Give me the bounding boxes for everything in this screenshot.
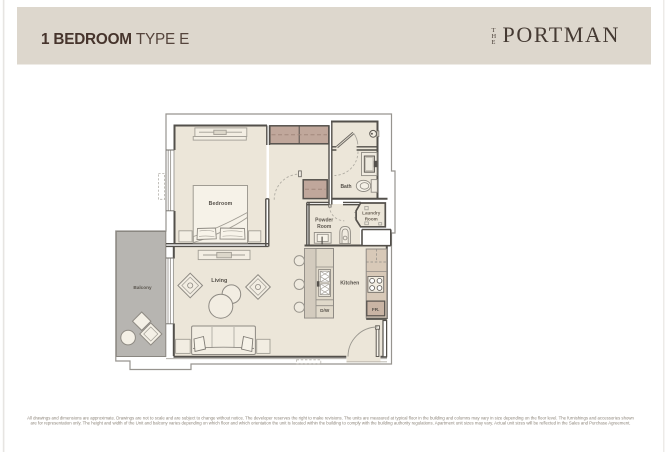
svg-text:1 BEDROOM TYPE E: 1 BEDROOM TYPE E [41,31,189,48]
svg-text:FR.: FR. [372,307,380,312]
svg-text:Bedroom: Bedroom [209,201,233,207]
svg-text:All drawings and dimensions ar: All drawings and dimensions are approxim… [27,415,634,420]
svg-text:Room: Room [365,217,378,222]
svg-text:E: E [492,39,496,46]
svg-text:Powder: Powder [315,218,333,224]
svg-text:are for representation only. T: are for representation only. The height … [30,421,630,426]
svg-text:Balcony: Balcony [133,285,152,290]
svg-text:Living: Living [211,278,227,284]
svg-text:Laundry: Laundry [362,211,381,216]
svg-text:Bath: Bath [340,184,351,190]
svg-text:PORTMAN: PORTMAN [503,22,620,47]
svg-text:Kitchen: Kitchen [340,281,359,287]
svg-text:Room: Room [317,224,332,230]
svg-text:D/W: D/W [320,308,330,313]
